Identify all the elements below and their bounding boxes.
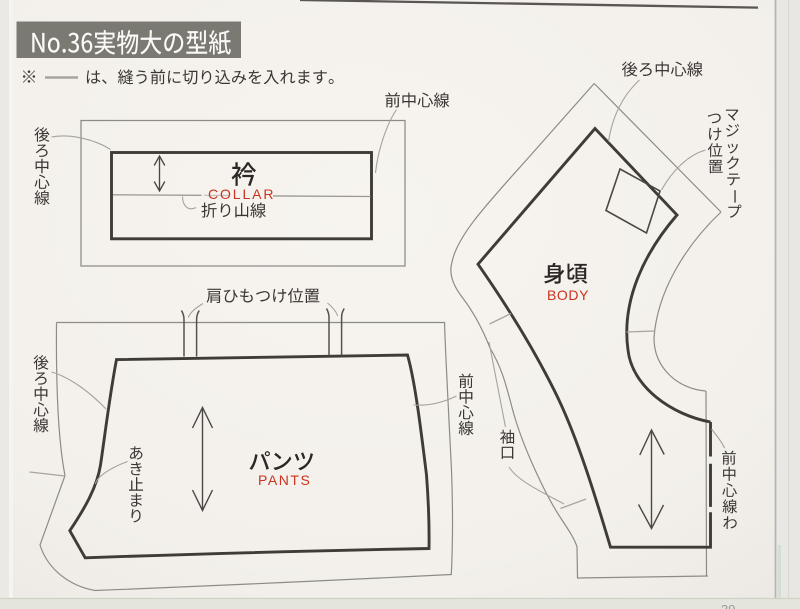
svg-text:COLLAR: COLLAR xyxy=(208,186,275,202)
svg-text:PANTS: PANTS xyxy=(258,472,311,488)
svg-text:39: 39 xyxy=(721,602,735,609)
svg-text:BODY: BODY xyxy=(547,287,589,303)
